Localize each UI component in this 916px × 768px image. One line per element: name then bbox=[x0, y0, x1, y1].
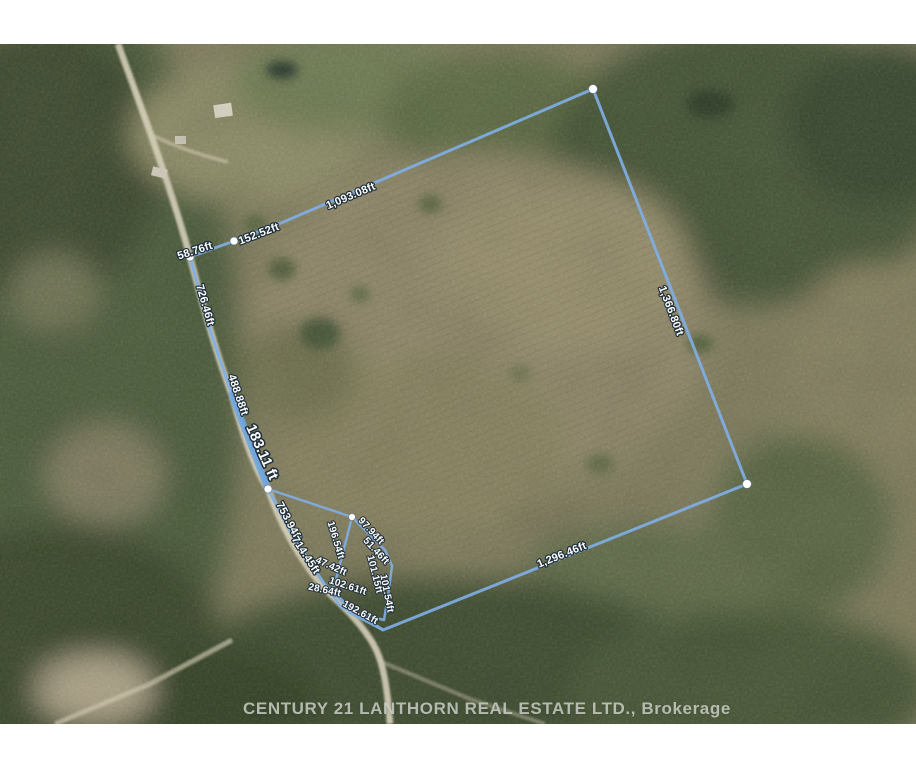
vertex-dot bbox=[743, 480, 752, 489]
listing-photo-page: 58.76ft 152.52ft 1,093.08ft 1,366.80ft 1… bbox=[0, 0, 916, 768]
aerial-photo-svg: 58.76ft 152.52ft 1,093.08ft 1,366.80ft 1… bbox=[0, 44, 916, 724]
brokerage-watermark: CENTURY 21 LANTHORN REAL ESTATE LTD., Br… bbox=[243, 699, 731, 719]
vertex-dot bbox=[349, 514, 356, 521]
vertex-dot bbox=[589, 85, 598, 94]
aerial-map: 58.76ft 152.52ft 1,093.08ft 1,366.80ft 1… bbox=[0, 44, 916, 724]
vertex-dot bbox=[264, 485, 272, 493]
